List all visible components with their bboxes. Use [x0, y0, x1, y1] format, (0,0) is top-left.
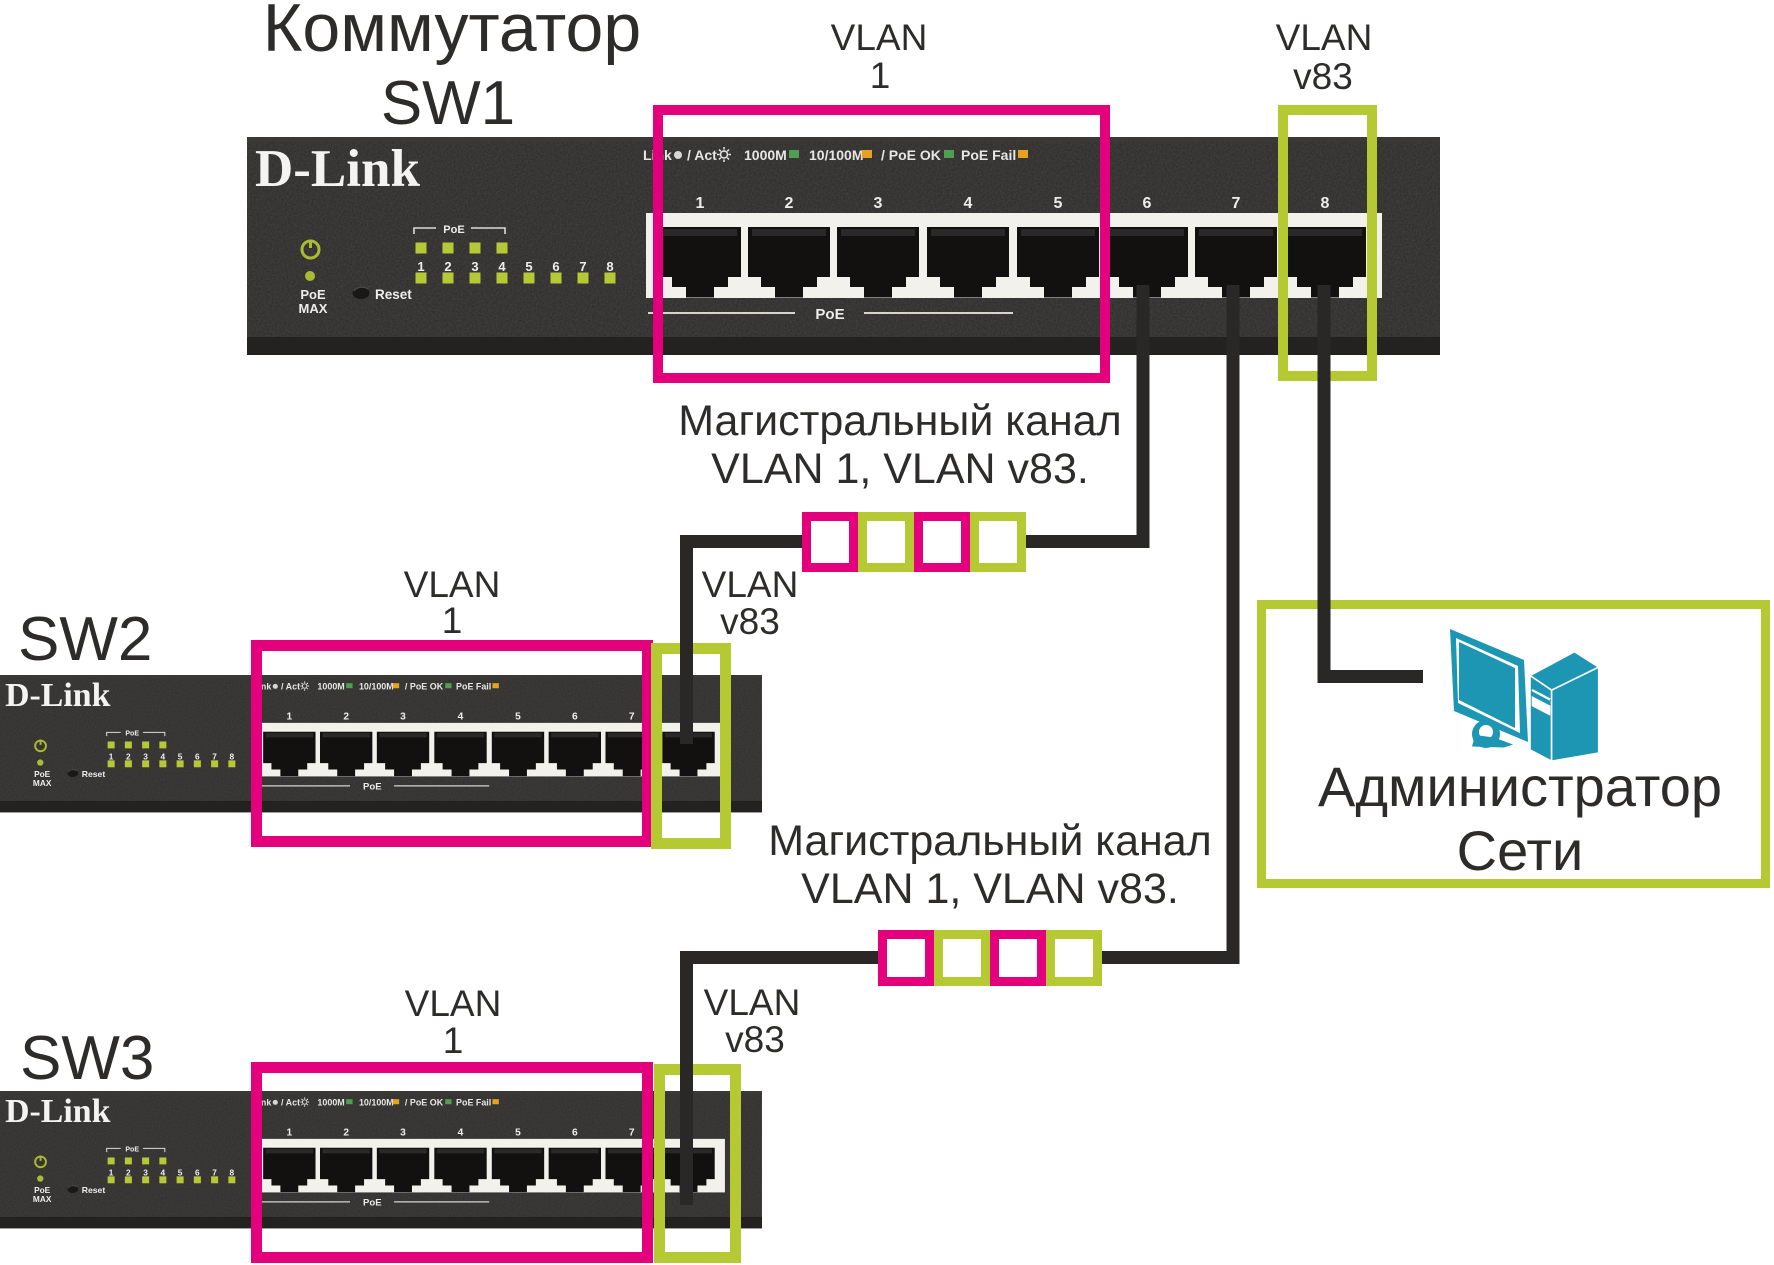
svg-text:1: 1: [442, 600, 463, 641]
svg-text:VLAN 1, VLAN v83.: VLAN 1, VLAN v83.: [711, 445, 1089, 493]
svg-text:VLAN: VLAN: [405, 983, 502, 1024]
svg-text:VLAN: VLAN: [704, 982, 801, 1023]
svg-text:v83: v83: [725, 1019, 785, 1060]
svg-text:Администратор: Администратор: [1318, 755, 1722, 818]
svg-text:Коммутатор: Коммутатор: [263, 0, 641, 66]
svg-text:1: 1: [870, 55, 891, 96]
svg-text:v83: v83: [1293, 56, 1353, 97]
svg-text:VLAN 1, VLAN v83.: VLAN 1, VLAN v83.: [801, 865, 1179, 913]
svg-text:Магистральный канал: Магистральный канал: [678, 397, 1121, 445]
svg-text:VLAN: VLAN: [702, 564, 799, 605]
svg-text:Магистральный канал: Магистральный канал: [768, 817, 1211, 865]
svg-text:VLAN: VLAN: [404, 564, 501, 605]
svg-text:SW2: SW2: [18, 605, 152, 674]
svg-text:VLAN: VLAN: [1276, 17, 1373, 58]
svg-text:Сети: Сети: [1457, 819, 1584, 882]
svg-text:1: 1: [443, 1020, 464, 1061]
svg-text:SW1: SW1: [381, 69, 515, 138]
svg-text:v83: v83: [720, 601, 780, 642]
svg-text:VLAN: VLAN: [831, 17, 928, 58]
svg-text:SW3: SW3: [20, 1024, 154, 1093]
